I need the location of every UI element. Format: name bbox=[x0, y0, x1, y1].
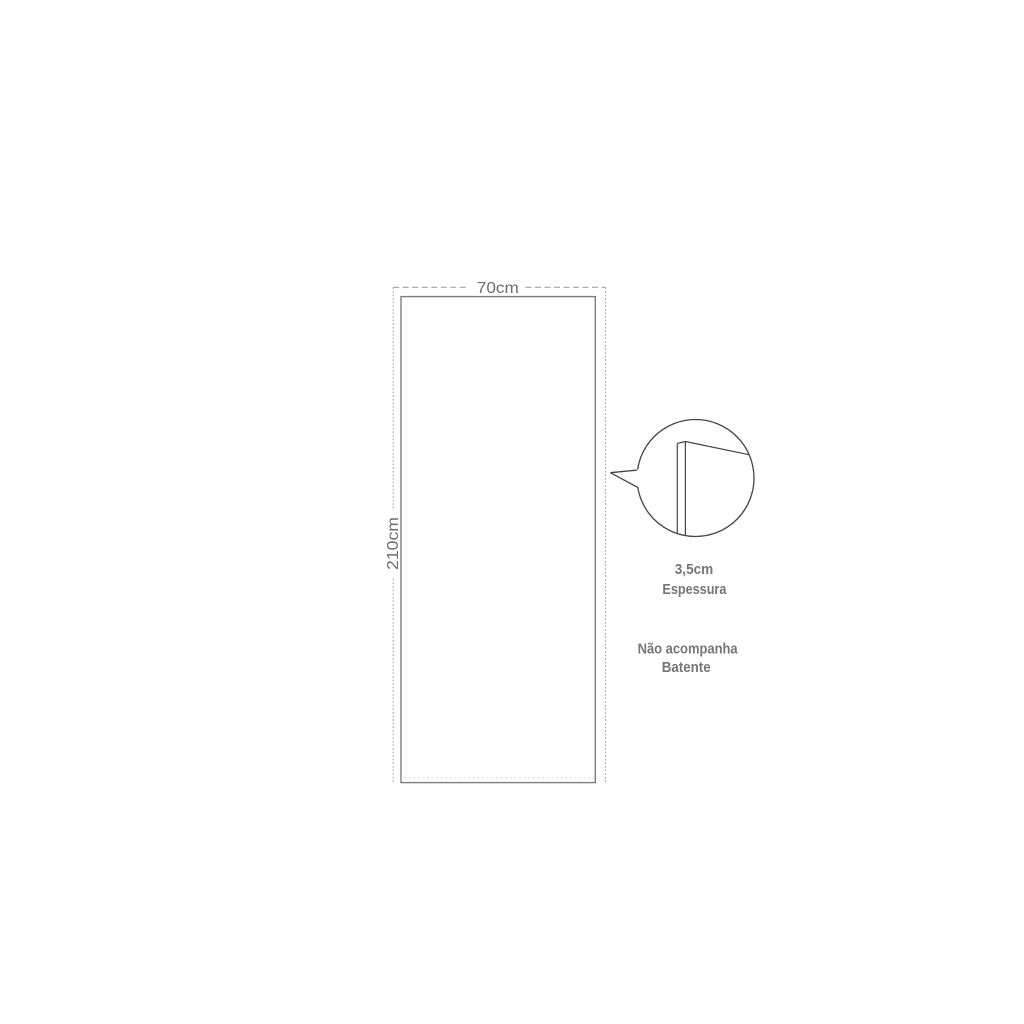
svg-text:Batente: Batente bbox=[662, 659, 711, 676]
svg-text:Não acompanha: Não acompanha bbox=[638, 640, 739, 657]
svg-text:210cm: 210cm bbox=[385, 517, 402, 570]
svg-text:Espessura: Espessura bbox=[662, 581, 727, 598]
svg-text:70cm: 70cm bbox=[477, 280, 519, 297]
svg-text:3,5cm: 3,5cm bbox=[675, 561, 714, 578]
